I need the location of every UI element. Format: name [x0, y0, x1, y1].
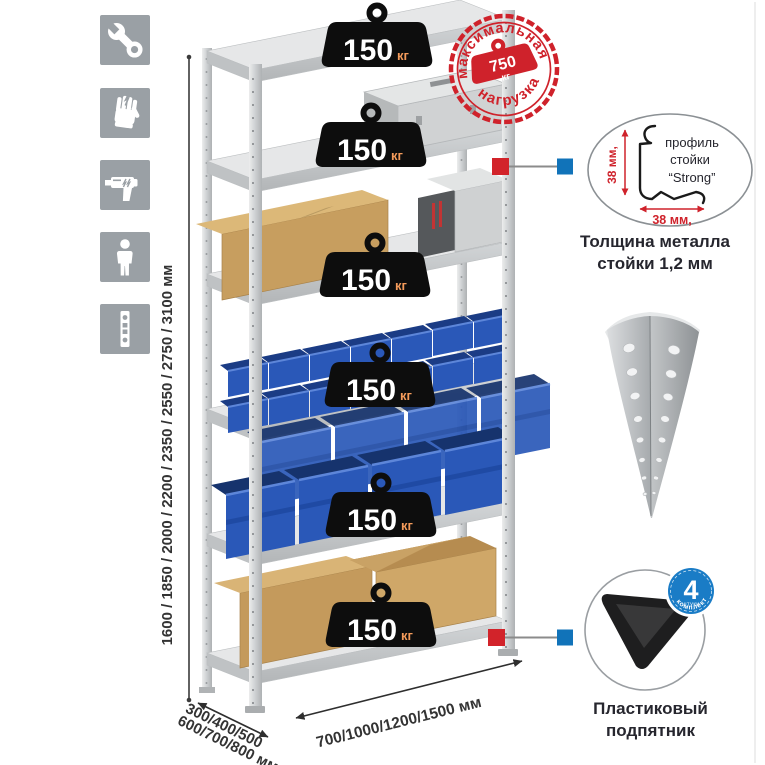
profile-caption: Толщина металла стойки 1,2 мм — [555, 231, 755, 275]
infographic-canvas: 150 кг — [0, 0, 765, 765]
foot-callout-blue-marker — [557, 630, 573, 646]
depth-dimension: 300/400/500 600/700/800 мм — [175, 700, 281, 765]
profile-callout-red-marker — [492, 158, 509, 175]
profile-callout-blue-marker — [557, 159, 573, 175]
profile-label-3: “Strong” — [669, 170, 716, 185]
foot-caption: Пластиковый подпятник — [553, 698, 748, 742]
profile-caption-line2: стойки 1,2 мм — [555, 253, 755, 275]
profile-label-1: профиль — [665, 135, 719, 150]
foot-callout-red-marker — [488, 629, 505, 646]
rack-illustration: 150 кг — [0, 0, 765, 765]
foot-caption-line1: Пластиковый — [553, 698, 748, 720]
width-dimension: 700/1000/1200/1500 мм — [296, 661, 522, 751]
height-dimension: 1600 / 1850 / 2000 / 2200 / 2350 / 2550 … — [159, 55, 191, 703]
height-dimension-label: 1600 / 1850 / 2000 / 2200 / 2350 / 2550 … — [159, 265, 176, 646]
kit-count-badge: 4 штуки в комплекте — [665, 565, 717, 617]
post-profile-detail: 38 мм, 38 мм, профиль стойки “Strong” — [588, 114, 752, 227]
profile-dim-side: 38 мм, — [605, 146, 619, 184]
badge-value: 4 — [683, 575, 698, 605]
angle-post-image — [605, 312, 700, 518]
width-dimension-label: 700/1000/1200/1500 мм — [315, 694, 484, 751]
foot-caption-line2: подпятник — [553, 720, 748, 742]
profile-label-2: стойки — [670, 152, 710, 167]
plastic-foot-detail: 4 штуки в комплекте — [585, 565, 717, 690]
profile-dim-bottom: 38 мм, — [652, 213, 691, 227]
profile-caption-line1: Толщина металла — [555, 231, 755, 253]
